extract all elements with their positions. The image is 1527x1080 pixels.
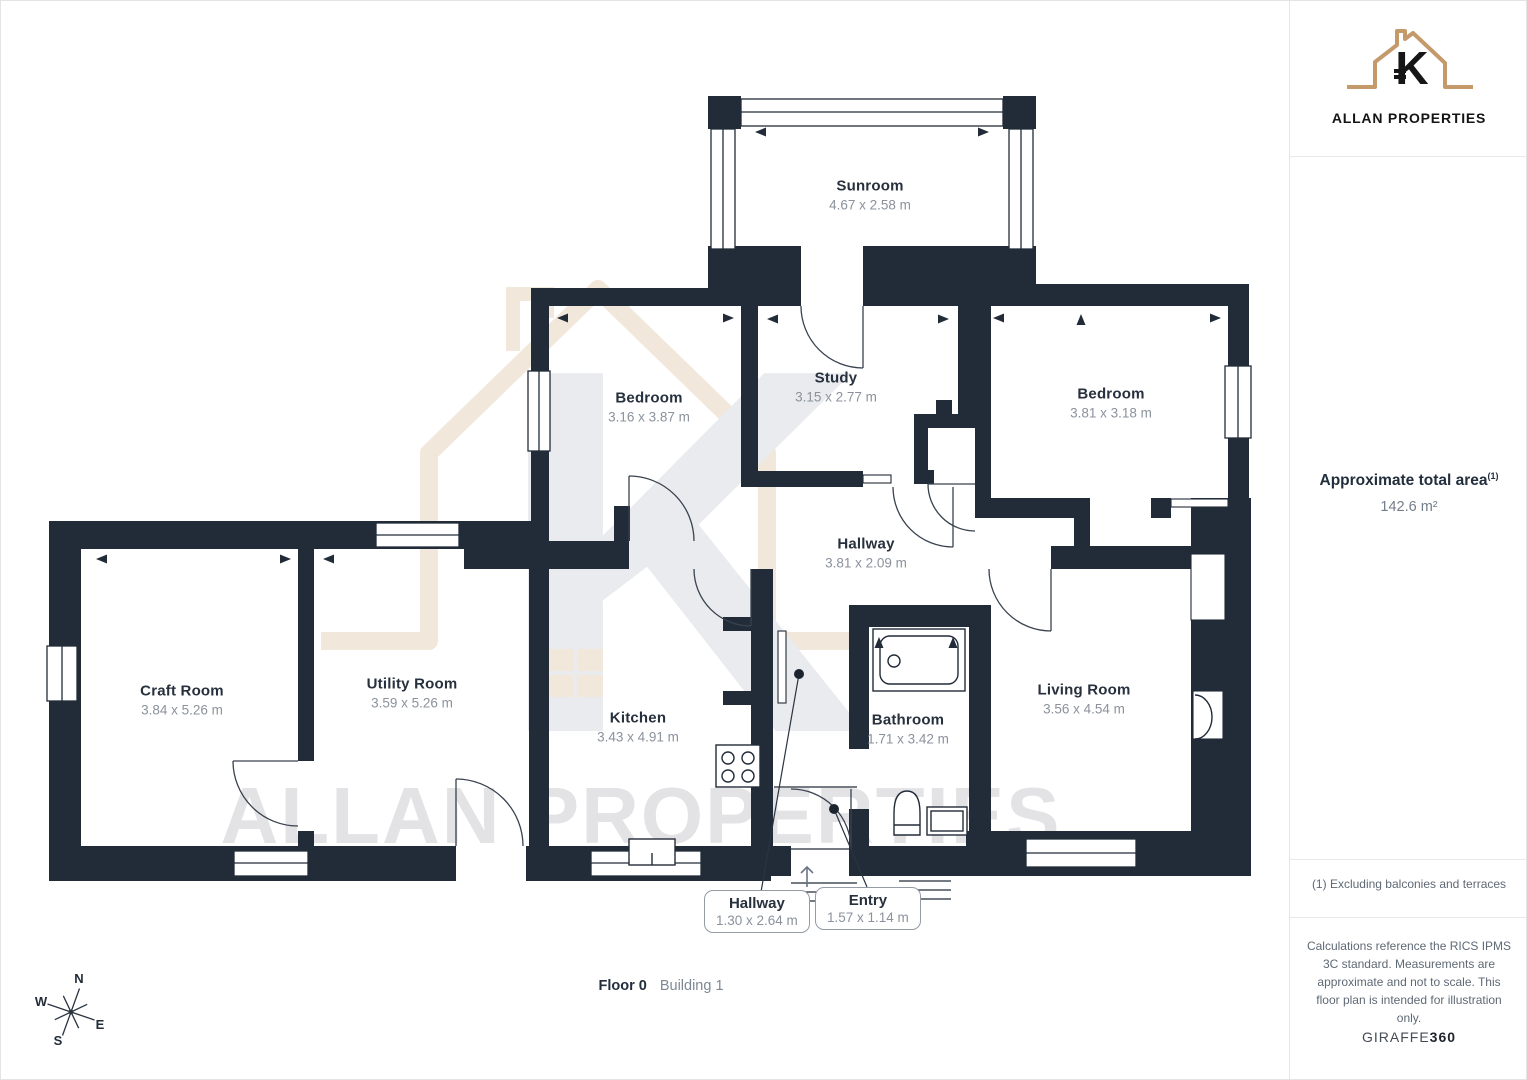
room-label-bathroom: Bathroom 1.71 x 3.42 m (867, 712, 949, 747)
bathtub-icon (873, 629, 965, 691)
info-sidebar: K ALLAN PROPERTIES Approximate total are… (1289, 1, 1527, 1080)
floor-number: Floor 0 (598, 978, 646, 994)
room-label-craft-room: Craft Room 3.84 x 5.26 m (140, 683, 224, 718)
room-label-sunroom: Sunroom 4.67 x 2.58 m (829, 178, 911, 213)
compass-west-label: W (35, 994, 48, 1009)
floor-plan-drawing: K ALLAN PROPERTIES (1, 1, 1289, 1080)
agency-logo-wordmark: ALLAN PROPERTIES (1290, 110, 1527, 126)
logo-monogram: K (1395, 42, 1428, 94)
sidebar-divider (1290, 859, 1527, 860)
agency-logo: K ALLAN PROPERTIES (1290, 23, 1527, 126)
stove-icon (716, 745, 760, 787)
kitchen-sink-icon (629, 839, 675, 865)
footnote-marker: (1) (1487, 471, 1498, 481)
room-label-utility-room: Utility Room 3.59 x 5.26 m (367, 676, 458, 711)
room-label-study: Study 3.15 x 2.77 m (795, 370, 877, 405)
disclaimer-text: Calculations reference the RICS IPMS 3C … (1306, 937, 1512, 1027)
toilet-icon (894, 791, 920, 835)
floorplan-page: K ALLAN PROPERTIES (0, 0, 1527, 1080)
room-label-bedroom-left: Bedroom 3.16 x 3.87 m (608, 390, 690, 425)
area-footnote: (1) Excluding balconies and terraces (1290, 877, 1527, 891)
giraffe360-credit: GIRAFFE360 (1290, 1029, 1527, 1047)
room-label-living-room: Living Room 3.56 x 4.54 m (1037, 682, 1130, 717)
total-area-block: Approximate total area(1) 142.6 m² (1290, 471, 1527, 515)
room-label-kitchen: Kitchen 3.43 x 4.91 m (597, 710, 679, 745)
wall-openings (456, 846, 526, 881)
disclaimer-block: Calculations reference the RICS IPMS 3C … (1290, 937, 1527, 1027)
compass-east-label: E (96, 1017, 105, 1032)
total-area-label: Approximate total area(1) (1290, 471, 1527, 490)
building-number: Building 1 (660, 978, 724, 994)
compass-rose: N W E S (35, 971, 105, 1048)
bathroom-sink-icon (927, 807, 967, 835)
sidebar-divider (1290, 917, 1527, 918)
entry-callout: Entry 1.57 x 1.14 m (815, 887, 921, 930)
entry-direction-arrow (801, 867, 813, 887)
compass-south-label: S (54, 1033, 63, 1048)
agency-logo-house-icon: K (1334, 23, 1484, 103)
floor-plan-area: K ALLAN PROPERTIES (1, 1, 1289, 1080)
total-area-value: 142.6 m² (1290, 499, 1527, 515)
floor-building-label: Floor 0 Building 1 (541, 978, 781, 994)
compass-north-label: N (74, 971, 83, 986)
hallway-callout: Hallway 1.30 x 2.64 m (704, 890, 810, 933)
room-label-hallway: Hallway 3.81 x 2.09 m (825, 536, 907, 571)
sidebar-divider (1290, 156, 1527, 157)
room-label-bedroom-right: Bedroom 3.81 x 3.18 m (1070, 386, 1152, 421)
